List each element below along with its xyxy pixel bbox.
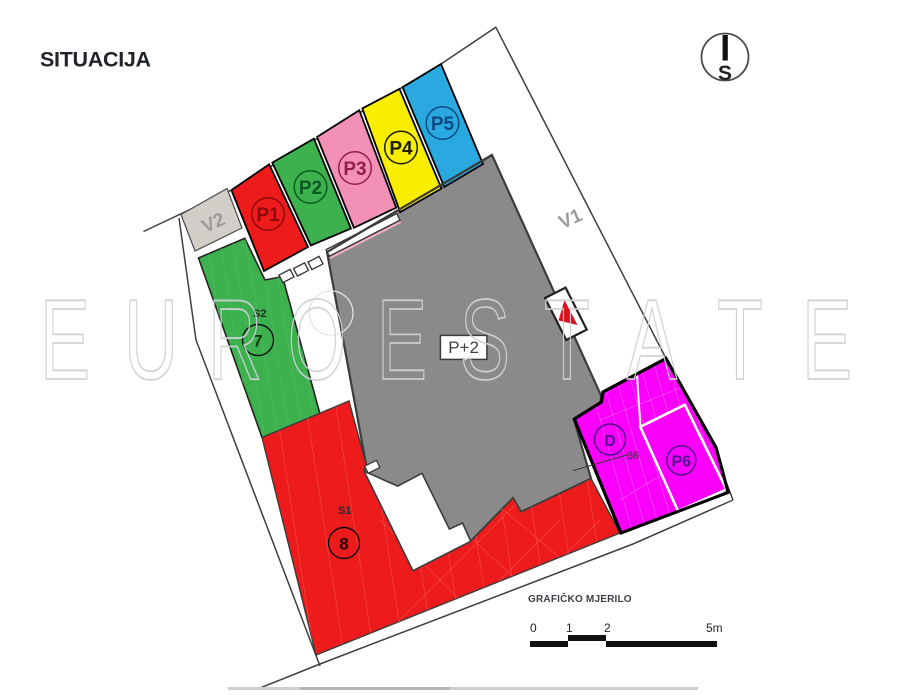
- svg-text:E: E: [377, 277, 427, 403]
- svg-text:D: D: [604, 433, 616, 450]
- svg-text:A: A: [627, 277, 678, 403]
- svg-text:P3: P3: [343, 159, 366, 180]
- svg-text:P6: P6: [672, 453, 692, 470]
- svg-text:P1: P1: [256, 205, 280, 226]
- svg-text:GRAFIČKO MJERILO: GRAFIČKO MJERILO: [528, 592, 632, 605]
- svg-text:T: T: [544, 277, 590, 403]
- svg-text:E: E: [802, 277, 852, 403]
- svg-text:P5: P5: [431, 114, 455, 135]
- svg-text:P4: P4: [389, 139, 413, 160]
- svg-text:5m: 5m: [706, 621, 723, 635]
- svg-text:1: 1: [566, 621, 573, 635]
- svg-text:S: S: [460, 277, 510, 403]
- svg-text:S1: S1: [338, 505, 351, 517]
- svg-text:8: 8: [339, 535, 348, 554]
- svg-text:S: S: [718, 62, 732, 85]
- svg-text:36: 36: [627, 450, 639, 462]
- svg-text:U: U: [124, 277, 178, 403]
- svg-text:T: T: [717, 277, 763, 403]
- svg-text:SITUACIJA: SITUACIJA: [40, 48, 151, 72]
- svg-text:0: 0: [530, 621, 537, 635]
- svg-text:P2: P2: [299, 178, 322, 199]
- svg-text:E: E: [40, 277, 90, 403]
- svg-text:O: O: [288, 277, 347, 403]
- svg-text:2: 2: [604, 621, 611, 635]
- svg-text:R: R: [208, 277, 262, 403]
